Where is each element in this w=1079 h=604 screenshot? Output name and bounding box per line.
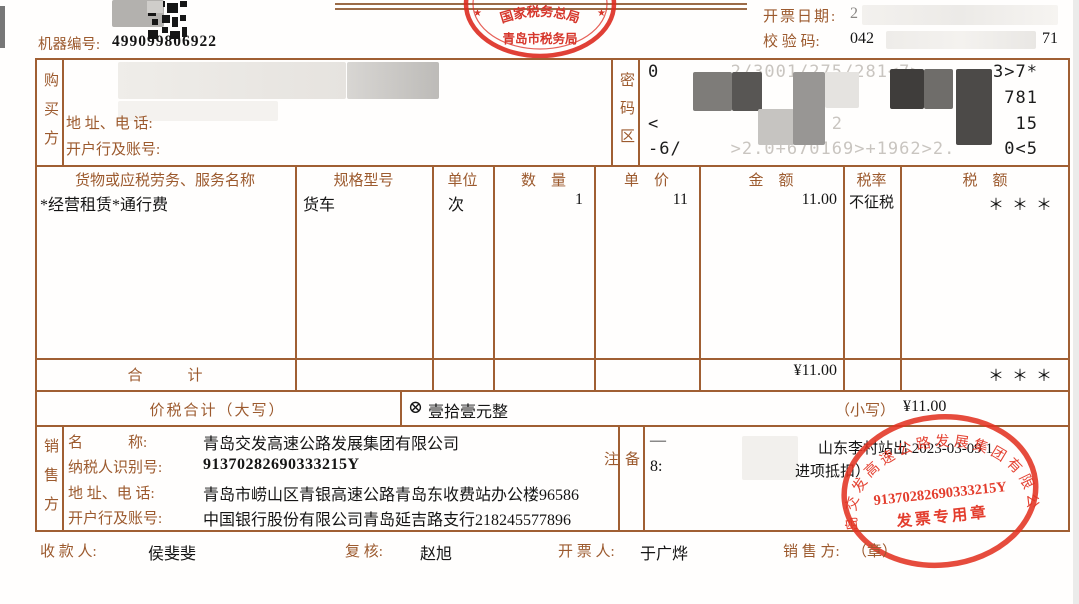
pw4-start: -6/ <box>648 139 682 159</box>
check-code-blur <box>886 31 1036 49</box>
sum-symbol-icon: ⊗ <box>408 397 423 418</box>
sum-small-label: （小写） <box>835 399 895 420</box>
seller-bank: 中国银行股份有限公司青岛延吉路支行218245577896 <box>203 506 571 530</box>
buyer-bank-label: 开户行及账号: <box>66 138 160 159</box>
invoice-date-partial: 2 <box>850 5 858 23</box>
remark-line2-start: 8: <box>650 458 662 476</box>
item-spec: 货车 <box>303 191 335 215</box>
scan-edge-right <box>1073 0 1079 604</box>
scan-edge-left <box>0 6 5 48</box>
pw2-end: 781 <box>1004 88 1038 108</box>
seller-name: 青岛交发高速公路发展集团有限公司 <box>203 430 459 454</box>
seller-taxid-label: 纳税人识别号: <box>68 456 162 477</box>
buyer-name-blur <box>118 62 346 99</box>
check-code-label: 校 验 码: <box>763 30 820 51</box>
reviewer-value: 赵旭 <box>420 540 452 564</box>
invoice-page: 机器编号: 499099806922 国家税务总局 青岛市税务局 ★ ★ 开票日… <box>0 0 1079 604</box>
remark-blur <box>742 436 798 480</box>
v-seller-label <box>62 425 64 532</box>
seller-name-label: 名 称: <box>68 431 147 452</box>
tax-bureau-stamp: 国家税务总局 青岛市税务局 ★ ★ <box>460 0 620 60</box>
item-unit: 次 <box>448 191 464 215</box>
stamp-star-left-icon: ★ <box>473 8 482 19</box>
rule-buyer-bottom <box>35 165 1070 167</box>
password-area-label: 密码区 <box>613 66 637 162</box>
pw-redaction-4 <box>793 72 825 145</box>
buyer-name-blur-dark <box>347 62 439 99</box>
rule-total-top <box>35 358 1070 360</box>
stamp-star-right-icon: ★ <box>597 8 606 19</box>
invoice-date-label: 开票日期: <box>763 5 837 26</box>
pw-redaction-7 <box>924 69 953 109</box>
check-code-end: 71 <box>1042 30 1058 48</box>
total-amount: ¥11.00 <box>701 362 837 380</box>
stamp-line1: 国家税务总局 <box>498 4 581 26</box>
pw3-start: < <box>648 114 659 134</box>
footer-seller-label: 销 售 方: <box>783 540 840 561</box>
col-header-price: 单 价 <box>596 169 697 190</box>
machine-no-label: 机器编号: <box>38 33 100 54</box>
v-buyer-label <box>62 58 64 165</box>
item-price: 11 <box>596 191 688 209</box>
v-remark-label-right <box>643 425 645 532</box>
col-header-tax: 税 额 <box>902 169 1068 190</box>
item-amount: 11.00 <box>701 191 837 209</box>
pw-redaction-5 <box>825 72 859 108</box>
remark-section-label: 备注 <box>620 436 642 528</box>
seller-address: 青岛市崂山区青银高速公路青岛东收费站办公楼96586 <box>203 481 579 505</box>
seller-stamp-title: 发票专用章 <box>895 502 990 531</box>
total-tax: ＊ ＊ ＊ <box>902 362 1054 386</box>
v-password-label-right <box>638 58 640 165</box>
footer-seller-seal: （章） <box>852 540 897 561</box>
reviewer-label: 复 核: <box>345 540 383 561</box>
v-col-2 <box>432 165 434 390</box>
item-qty: 1 <box>495 191 583 209</box>
drawer-value: 于广烨 <box>640 540 688 564</box>
col-header-spec: 规格型号 <box>297 169 430 190</box>
check-code-start: 042 <box>850 30 874 48</box>
pw-redaction-3 <box>758 109 794 145</box>
payee-label: 收 款 人: <box>40 540 97 561</box>
pw-redaction-8 <box>956 69 992 145</box>
buyer-address-label: 地 址、电 话: <box>66 112 153 133</box>
col-header-name: 货物或应税劳务、服务名称 <box>37 169 293 190</box>
pw4-end: 0<5 <box>1004 139 1038 159</box>
pw1-end: 3>7* <box>993 62 1038 82</box>
remark-dash: — <box>650 432 666 450</box>
col-header-amount: 金 额 <box>701 169 841 190</box>
rule-sum-top <box>35 390 1070 392</box>
pw1-start: 0 <box>648 62 659 82</box>
seller-section-label: 销售方 <box>37 432 61 530</box>
invoice-date-blur <box>862 5 1058 25</box>
drawer-label: 开 票 人: <box>558 540 615 561</box>
item-tax-rate: 不征税 <box>843 191 900 212</box>
pw3-end: 15 <box>1016 114 1038 134</box>
v-sum-divider <box>400 390 402 425</box>
total-label: 合 计 <box>37 364 293 385</box>
col-header-unit: 单位 <box>434 169 491 190</box>
pw-redaction-6 <box>890 69 924 109</box>
machine-no-value: 499099806922 <box>112 33 217 51</box>
pw3-mid: 2 <box>832 114 843 134</box>
col-header-qty: 数 量 <box>495 169 592 190</box>
item-name: *经营租赁*通行费 <box>40 191 168 215</box>
seller-bank-label: 开户行及账号: <box>68 507 162 528</box>
v-col-1 <box>295 165 297 390</box>
sum-words: 壹拾壹元整 <box>428 398 508 422</box>
payee-value: 侯斐斐 <box>148 540 196 564</box>
stamp-line2: 青岛市税务局 <box>502 31 577 46</box>
col-header-tax-rate: 税率 <box>845 169 898 190</box>
item-tax: ＊ ＊ ＊ <box>902 191 1054 215</box>
seller-taxid: 91370282690333215Y <box>203 456 360 474</box>
pw-redaction-2 <box>732 72 762 111</box>
seller-address-label: 地 址、电 话: <box>68 482 155 503</box>
pw-redaction-1 <box>693 72 732 111</box>
svg-text:国家税务总局: 国家税务总局 <box>498 4 581 26</box>
buyer-section-label: 购买方 <box>37 66 61 164</box>
sum-row-label: 价税合计（大写） <box>37 399 398 420</box>
